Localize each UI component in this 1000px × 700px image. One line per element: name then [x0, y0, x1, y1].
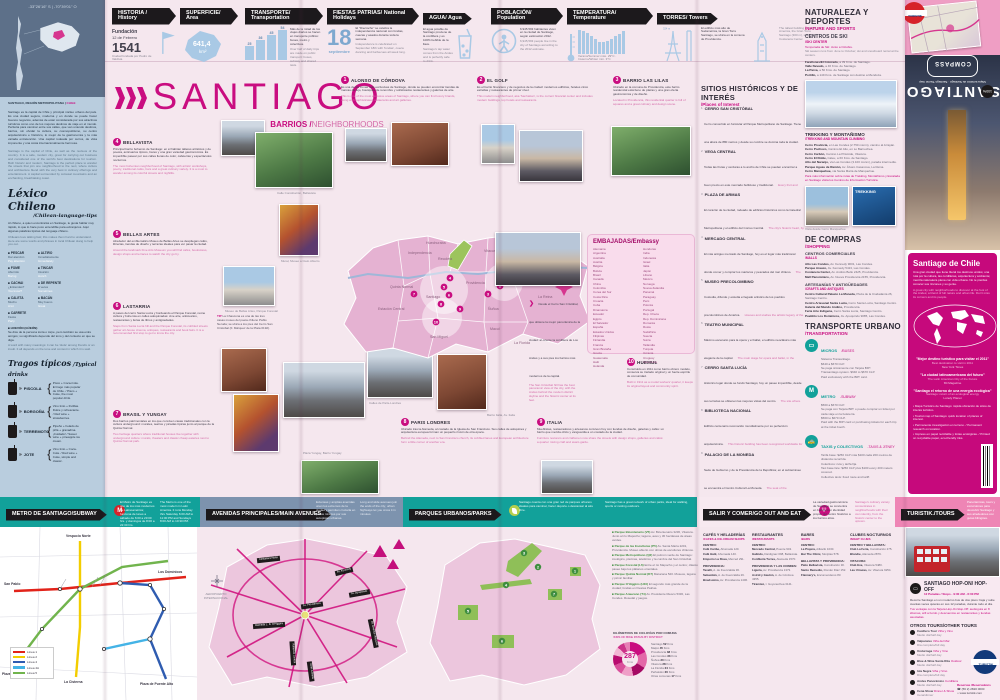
barrio-number: 3 — [613, 76, 621, 84]
avenidas-banner: AVENIDAS PRINCIPALES/MAIN AVENUES — [206, 509, 331, 521]
trail-item: Cerro Manquehue, vía Santa María de Manq… — [805, 169, 901, 173]
bares-column: BARES/BARS CENTRO: La Piojera, Aillavilú… — [801, 533, 847, 579]
chevron-icon — [126, 87, 136, 109]
transport-bar-chart: 25364554 — [245, 28, 287, 60]
ski-season-en: Ski season runs from June to October; sk… — [805, 50, 901, 58]
barrio-number: 9 — [537, 418, 545, 426]
venue: Confitería Torres, Alameda 1570. — [752, 558, 798, 562]
poblacion-note-es: 6.945.593 habitantes viven en la ciudad … — [520, 28, 558, 40]
svg-text:km²: km² — [199, 49, 207, 54]
venue: Astrid y Gastón, A. de Córdova 4355. — [752, 574, 798, 582]
cafes-column: CAFÉS Y HELADERÍAS/CAFES & ICE-CREAM SHO… — [703, 533, 749, 584]
hopon-highlight: Tus ventajas con la Tarjeta Hop-On/Hop-O… — [910, 608, 995, 620]
svg-text:Providencia: Providencia — [466, 281, 485, 285]
park-item: ■ Parque Metropolitano (Q2) El pulmón ve… — [612, 553, 698, 561]
ski-center: Portillo, a 149 Kms. de Santiago con des… — [805, 73, 901, 77]
photo-sanhattan — [519, 130, 583, 182]
barrio-entry-8: 8PARIS LONDRES Ubicado tras la Alameda, … — [401, 418, 529, 445]
band-turistik: TURISTIK./TOURS Panorámicas, tours y exc… — [895, 497, 1000, 527]
temperature-bar — [622, 31, 625, 53]
embassies-title: EMBAJADAS/Embassy — [593, 239, 689, 245]
drink-item: » TERREMOTO { Pipeño + helado de piña + … — [8, 425, 97, 444]
trekking-list: Cerro Provincia, en Las Condes (2.750 ms… — [805, 143, 901, 173]
transporte-banner: TRANSPORTE/ Transportation — [245, 8, 323, 25]
barrio-number: 4 — [113, 138, 121, 146]
world-map-graphic — [913, 304, 997, 348]
water-glass-icon — [456, 28, 474, 60]
photo-golf-towers — [481, 124, 515, 164]
svg-text:Plaza de Puente Alto: Plaza de Puente Alto — [140, 682, 173, 686]
towers-icon: 324 m — [657, 27, 697, 65]
lexico-word: ■ CALETA Mucho A lot — [8, 296, 38, 308]
transport-bar: 25 — [245, 42, 254, 60]
legend-row: Línea 4 — [13, 660, 51, 664]
eco-bullet: • Tourist map of Santiago: quick locatio… — [913, 415, 992, 423]
tour-icon — [910, 690, 915, 695]
temperatura-banner: TEMPERATURA/ Temperature — [567, 8, 653, 25]
temperature-bar — [602, 42, 605, 53]
intro-es: Santiago es la capital de Chile y princi… — [8, 111, 97, 146]
park-item: ■ Parque Quinta Normal (D7) Matucana 520… — [612, 572, 698, 580]
barrio-number: 1 — [341, 76, 349, 84]
photo-galeria-arte — [391, 122, 449, 166]
lexico-word: ■ DE REPENTE A veces Sometimes — [38, 281, 68, 293]
subtitle-barrios: BARRIOS / — [270, 120, 311, 129]
barrio-entry-6: 6LASTARRIA A pasos del cerro Santa Lucía… — [113, 302, 215, 336]
metro-band-es: El Metro de Santiago es uno de los más m… — [120, 501, 156, 528]
svg-text:Recoleta: Recoleta — [438, 257, 452, 261]
temperature-bar — [578, 30, 581, 53]
tours-title: OTROS TOURS/OTHER TOURS — [910, 623, 995, 628]
tour-item: Valparaíso Viña del MarDía completo/full… — [910, 640, 995, 648]
airport-label: AEROPUERTO INTERNACIONAL — [203, 593, 229, 601]
transport-bar: 54 — [278, 26, 287, 60]
legend-row: Línea 1 — [13, 650, 51, 654]
coordinates: -33°26'16" S | -70°39'01" O — [0, 4, 105, 9]
park-item: ■ Parque O'Higgins (H10) El segundo más … — [612, 582, 698, 590]
salir-y-comer-panel: CAFÉS Y HELADERÍAS/CAFES & ICE-CREAM SHO… — [700, 527, 895, 700]
ciclovias-title-en: /KMS OF BIKE PATHS BY DISTRICT — [613, 636, 699, 640]
temperature-bar — [582, 31, 585, 53]
photo-plaza-yungay — [301, 460, 379, 494]
drink-item: » BORGOÑA { Vino tinto + frutillas. Dulc… — [8, 405, 97, 421]
poblacion-banner: POBLACIÓN/ Population — [491, 8, 563, 25]
avenidas-band-es: Extensas y amplias avenidas unen los ext… — [316, 501, 356, 520]
fiestas-note-en: Independence is celebrated on September … — [355, 43, 407, 55]
barrio-entry-1: 1ALONSO DE CÓRDOVA Es una de las zonas m… — [341, 76, 463, 103]
drink-glass-icon — [8, 382, 17, 395]
photo-hiker — [805, 186, 849, 226]
photo-caption: Museo de Bellas Artes, Parque Forestal — [225, 309, 279, 313]
photo-alonso-cordova — [345, 128, 387, 162]
tour-icon — [910, 640, 915, 645]
brace-glyph: { — [47, 405, 51, 418]
huevon-note: ■ HUEVÓN (GÜEÓN) Se dice de la persona t… — [8, 327, 97, 351]
infographic-superficie: SUPERFICIE/ Area 641,4 km² — [180, 6, 238, 69]
venue: Tiramisú, I. Goyenechea 3141. — [752, 583, 798, 587]
lexico-word: ■ PESCAR Dar atención Pay attention — [8, 251, 38, 263]
region-line: SANTIAGO, REGIÓN METROPOLITANA | CHILE — [8, 102, 97, 106]
panorama-caption: ❯ Desde el Cerro San Cristóbal, que obti… — [529, 292, 581, 403]
back-intro-es: Una gran ciudad que tiene literal los de… — [913, 271, 992, 287]
avenidas-map-panel: AEROPUERTO INTERNACIONAL Costanera Norte… — [197, 527, 420, 700]
photo-lastarria — [221, 348, 267, 392]
salir-band-en: Santiago's culinary variety concentrates… — [855, 501, 893, 524]
photo-street-scene — [283, 362, 365, 418]
barrio-number: 7 — [113, 410, 121, 418]
park-item: ■ Parque Forestal (L6) Entre el río Mapo… — [612, 563, 698, 571]
photo-turistik-bus-street — [905, 527, 1000, 577]
chile-map-outline — [10, 14, 95, 94]
lexico-word: ■ ALTIRO Inmediatamente Immediately — [38, 251, 68, 263]
venue: Bravissimo, Av. Providencia 1406. — [703, 579, 749, 583]
mode-line: Paid with the BIP! card or purchasing ti… — [821, 420, 899, 429]
svg-text:641,4: 641,4 — [193, 41, 211, 48]
mode-line: Taxi base fare: $250 CLP plus $100 every… — [821, 466, 899, 475]
photo-caption: Calles de Paris-Londres — [369, 401, 429, 405]
lexico-intro-es: Al chileno, a quien encontrarás en Santi… — [8, 222, 97, 234]
svg-text:324 m: 324 m — [663, 27, 670, 31]
eco-bullet: • Mapa Turístico de Santiago: rápida ubi… — [913, 405, 992, 413]
lexico-word: ■ CARRETE Fiesta Party — [8, 311, 38, 323]
malls-list: Alto Las Condes, Av. Kennedy 9001, Las C… — [805, 262, 901, 279]
cover-front-panel: SANTIAGO Mapa turístico de Santiago · Sa… — [905, 55, 1000, 250]
malls-subtitle: /MALLS — [805, 256, 901, 260]
tour-icon — [910, 670, 915, 675]
park-item: ■ Parque Bicentenario (V5) Av. Bicentena… — [612, 530, 698, 542]
infographic-temperatura: TEMPERATURA/ Temperature Verano/Summer m… — [567, 6, 653, 62]
gran-torre-silhouette — [948, 110, 966, 220]
back-intro-en: A great city with neighborhoods to disco… — [913, 289, 992, 301]
parques-list: ■ Parque Bicentenario (V5) Av. Bicentena… — [612, 530, 698, 630]
temperature-bar — [594, 39, 597, 53]
brace-glyph: { — [47, 448, 51, 461]
compass-logo: COMPASS — [927, 55, 978, 77]
back-title: Santiago de Chile — [913, 259, 992, 268]
turistik-banner: TURISTIK./TOURS — [901, 509, 965, 521]
mode-line: Se paga con Tarjeta BIP! o puede comprar… — [821, 407, 899, 416]
svg-text:San Pablo: San Pablo — [4, 582, 20, 586]
chevron-icon — [115, 87, 125, 109]
lexico-word: ■ BACÁN Muy bueno Great — [38, 296, 68, 308]
mall-item: Mall Panorámico, Av. Nueva Providencia 2… — [805, 275, 901, 279]
lexico-intro-en: Chileans love talking fast; this makes t… — [8, 236, 97, 248]
chevron-icon — [137, 87, 147, 109]
naturaleza-subtitle: /NATURE AND SPORTS — [805, 26, 901, 31]
eco-bullet: • Permanente investigación en terreno. /… — [913, 424, 992, 432]
crafts-list: Centro Cultural Palacio La Moneda, Plaza… — [805, 292, 901, 318]
band-parques: PARQUES URBANOS/PARKS Santiago cuenta co… — [403, 497, 697, 527]
lexico-word: ■ CACHAI ¿Entiendes? You know? — [8, 281, 38, 293]
temperature-bar — [590, 36, 593, 54]
band-metro: METRO DE SANTIAGO/SUBWAY M El Metro de S… — [0, 497, 200, 527]
drinks-title: Tragos típicos /Typical drinks — [8, 358, 97, 378]
mode-metro: M METRO -SUBWAY $560 a $670 CLP.Se paga … — [805, 385, 901, 429]
metro-banner: METRO DE SANTIAGO/SUBWAY — [6, 509, 107, 521]
svg-text:Estación Central: Estación Central — [378, 307, 405, 311]
drinks-list: » PISCOLA { Pisco + Coca-Cola. El trago … — [8, 382, 97, 464]
temperature-bar — [598, 42, 601, 54]
barrio-entry-4: 4BELLAVISTA Principal barrio bohemio de … — [113, 138, 215, 176]
agua-banner: AGUA/ Agua — [423, 13, 472, 25]
park-item: ■ Parque de las Esculturas (P5) Av. Sant… — [612, 544, 698, 552]
photo-caption: Plaza Yungay, Barrio Yungay — [303, 451, 379, 455]
quote: "La ciudad latinoamericana del futuro" T… — [913, 373, 992, 385]
drink-item: » JOTE { Vino tinto + Coca-Cola. / Red w… — [8, 448, 97, 464]
drink-glass-icon — [8, 425, 17, 438]
quotes-list: "Mejor destino turístico para visitar el… — [913, 357, 992, 401]
clubes-column: CLUBES NOCTURNOS/NIGHT CLUBS CENTRO Y BE… — [850, 533, 896, 574]
brace-glyph: { — [47, 425, 51, 438]
svg-text:Macul: Macul — [490, 327, 500, 331]
salir-band-es: La variedad gastronómica de Santiago se … — [813, 501, 851, 520]
fiestas-note-es: El "Dieciocho" se celebra la independenc… — [355, 27, 407, 43]
map-sheet: -33°26'16" S | -70°39'01" O HISTORIA / H… — [0, 0, 1000, 700]
embassy-line: Venezuela — [643, 360, 689, 364]
population-icon — [491, 28, 517, 54]
barrio-number: 5 — [113, 230, 121, 238]
tour-item: Casillero Tour Viña y VinoMedio día/half… — [910, 630, 995, 638]
chile-locator-panel: -33°26'16" S | -70°39'01" O — [0, 0, 105, 97]
legend-row: Línea 2 — [13, 655, 51, 659]
brace-glyph: { — [47, 382, 51, 395]
legend-row: Línea 4A — [13, 666, 51, 670]
metro-band-en: The Metro is one of the most modern in L… — [160, 501, 196, 524]
crafts-subtitle: /CRAFTS AND ANTIQUES — [805, 287, 901, 291]
ciclovias-legend-row: Otras comunas 17 Kms — [651, 674, 681, 678]
photo-caption: Mural, Museo a Cielo Abierto — [281, 259, 325, 263]
svg-text:Vespucio Norte: Vespucio Norte — [66, 534, 91, 538]
ciclovias-chart: KILÓMETROS DE CICLOVÍAS POR COMUNA /KMS … — [613, 632, 699, 698]
mode-taxis: 🚕 TAXIS y COLECTIVOS -TAXIS & JITNEY Tar… — [805, 435, 901, 479]
embassy-line: Holanda — [593, 364, 639, 368]
turistik-hopon-panel: ▭ SANTIAGO HOP-ON/ HOP-OFF 12 Paradas / … — [905, 577, 1000, 700]
photo-bellas-artes — [223, 266, 275, 306]
parques-banner: PARQUES URBANOS/PARKS — [409, 509, 502, 521]
infographic-agua: AGUA/ Agua El agua potable de Santiago p… — [423, 6, 485, 64]
barrio-entry-3: 3BARRIO LAS LILAS Ubicado en la comuna d… — [613, 76, 693, 106]
tour-icon — [910, 660, 915, 665]
transport-bar: 36 — [256, 36, 265, 60]
photo-calle-constitucion — [255, 132, 333, 188]
lexico-word: ■ FOME Aburrido Boring — [8, 266, 38, 278]
svg-text:San Miguel: San Miguel — [430, 335, 448, 339]
barrio-number: 2 — [477, 76, 485, 84]
barrio-entry-5: 5BELLAS ARTES Alrededor del emblemático … — [113, 230, 215, 257]
photo-trekking-guide: TREKKING — [852, 186, 896, 226]
metro-legend: Línea 1 Línea 2 Línea 4 Línea 4A — [10, 647, 54, 679]
lexico-subtitle: /Chilean-language-tips — [8, 213, 97, 219]
fundacion-year: 1541 — [112, 40, 158, 55]
parques-map-panel: 1 2 3 4 5 6 7 — [420, 527, 612, 700]
barrios-panel: SANTIAGO BARRIOS /NEIGHBORHOODS 1ALONSO … — [105, 62, 697, 497]
eco-bullets: • Mapa Turístico de Santiago: rápida ubi… — [913, 405, 992, 441]
craft-item: Pueblito Los Domínicos, Av. Apoquindo 90… — [805, 314, 901, 318]
transporte-urbano-title: TRANSPORTE URBANO — [805, 322, 901, 331]
fiestas-month: septiembre — [327, 49, 351, 54]
cover-top-panel: TURISTIK — [905, 0, 1000, 55]
svg-text:10: 10 — [434, 320, 439, 325]
transport-bar: 45 — [267, 31, 276, 60]
transporte-urbano-subtitle: /TRANSPORTATION — [805, 331, 901, 336]
infographic-poblacion: POBLACIÓN/ Population 6.945.593 habitant… — [491, 6, 563, 54]
venue: Flannery's, Encomenderos 83. — [801, 574, 847, 578]
flag-icon — [161, 29, 176, 55]
venue: Las Urracas, Av. Vitacura 9254. — [850, 569, 896, 573]
poblacion-note-en: 6,945,593 people live in the city of San… — [520, 40, 558, 52]
metro-icon: M — [805, 385, 818, 398]
ski-centers-list: Farellones/El Colorado, a 39 Kms. de San… — [805, 60, 901, 77]
band-avenidas: AVENIDAS PRINCIPALES/MAIN AVENUES Extens… — [200, 497, 403, 527]
compras-subtitle: /SHOPPING — [805, 244, 901, 249]
photo-ski-valley — [805, 80, 897, 128]
restaurantes-column: RESTAURANTES/RESTAURANTS CENTRO: Mercado… — [752, 533, 798, 587]
transporte-note-es: Más de la mitad de los viajes diarios se… — [290, 28, 323, 47]
tour-icon — [910, 630, 915, 635]
temperature-bar — [586, 33, 589, 54]
naturaleza-title: NATURALEZA Y DEPORTES — [805, 8, 901, 26]
mode-line: Tarifa base: $250 CLP más $100 cada 200 … — [821, 453, 899, 462]
bus-icon: ▭ — [805, 339, 818, 352]
turistik-logo: TURISTIK — [973, 650, 997, 674]
hopon-es: Recorre Santiago en un moderno bus de do… — [910, 599, 995, 607]
eco-bullet: • Impreso en papel reciclable y tintas e… — [913, 433, 992, 441]
infographic-fiestas: FIESTAS PATRIAS/ National Holidays 18 se… — [327, 6, 419, 55]
svg-text:La Florida: La Florida — [514, 341, 530, 345]
photo-las-lilas — [611, 126, 691, 176]
barrio-entry-9: 9ITALIA Mueblistas, restauradores y arte… — [537, 418, 665, 445]
temperature-bar-chart — [578, 28, 634, 54]
svg-text:Santiago: Santiago — [426, 295, 440, 299]
lexico-word: ■ TINCAR Intuición Hunch — [38, 266, 68, 278]
right-column: SITIOS HISTÓRICOS Y DE INTERÉS /Places o… — [697, 0, 905, 497]
area-blob-icon: 641,4 km² — [180, 28, 224, 64]
temperature-bar — [618, 34, 621, 54]
trek-photo-caption: Vista desde Cerro Manquehue — [805, 227, 901, 231]
thermometer-icon — [567, 32, 575, 62]
legend-row: Línea 5 — [13, 671, 51, 675]
parques-band-es: Santiago cuenta con una gran red de parq… — [519, 501, 599, 513]
historia-banner: HISTORIA / History — [112, 8, 176, 25]
ciclovias-legend: Santiago 52 KmsMaipú 45 KmsProvidencia 3… — [651, 642, 681, 679]
barcode — [981, 444, 993, 488]
intro-en: Santiago is the capital of Chile, as wel… — [8, 150, 97, 181]
ciclovias-unit: Kms — [627, 660, 633, 664]
svg-text:Quinta Normal: Quinta Normal — [390, 285, 413, 289]
tour-icon — [910, 680, 915, 685]
superficie-banner: SUPERFICIE/ Area — [180, 8, 238, 25]
fiestas-banner: FIESTAS PATRIAS/ National Holidays — [327, 8, 419, 25]
tour-icon — [910, 650, 915, 655]
salir-banner: SALIR Y COMER/GO OUT AND EAT — [703, 509, 811, 521]
band-salir: SALIR Y COMER/GO OUT AND EAT Ψ La varied… — [697, 497, 895, 527]
lexico-word-grid: ■ PESCAR Dar atención Pay attention ■ AL… — [8, 251, 97, 323]
svg-text:La Cisterna: La Cisterna — [64, 680, 83, 684]
venue: Blondie, Alameda 2879. — [850, 553, 896, 557]
quote: "Mejor destino turístico para visitar el… — [913, 357, 992, 369]
photo-caption: Calle Constitución, Bellavista — [277, 191, 337, 195]
temperature-bar — [606, 41, 609, 54]
craft-item: Centro Cultural Palacio La Moneda, Plaza… — [805, 292, 901, 301]
embassies-list: AlemaniaArgentinaAustraliaAustriaBélgica… — [593, 247, 689, 369]
park-item: ■ Parque Araucano (T4) Av. Presidente Ri… — [612, 592, 698, 600]
trekking-note: Para más información sobre rutas de Trek… — [805, 175, 901, 183]
cover-back-panel: Santiago de Chile Una gran ciudad que ti… — [905, 250, 1000, 497]
venue: Bar The Clinic, Monjitas 578. — [801, 553, 847, 557]
parques-band-en: Santiago has a great network of urban pa… — [605, 501, 691, 509]
quote: "Santiago el retorno de una energía ecol… — [913, 389, 992, 401]
barrio-entry-7: 7BRASIL Y YUNGAY Dos barrios patrimonial… — [113, 410, 215, 444]
drink-glass-icon — [8, 448, 17, 461]
photo-mural — [279, 204, 319, 256]
reservations-block: Reservas /Reservations ☎ (56 2) 2820 000… — [957, 684, 997, 696]
mode-line: Paid exclusively with the BIP! card. — [821, 375, 899, 379]
compras-title: DE COMPRAS — [805, 235, 901, 244]
temperature-bar — [610, 39, 613, 53]
naturaleza-section: NATURALEZA Y DEPORTES /NATURE AND SPORTS… — [805, 8, 901, 485]
svg-text:Huechuraba: Huechuraba — [426, 241, 446, 245]
hopon-bus-icon: ▭ — [910, 583, 921, 594]
ski-subtitle: /SKI CENTER — [805, 40, 901, 44]
infographic-historia: HISTORIA / History Fundación 12 de Febre… — [112, 6, 176, 62]
fiestas-day: 18 — [327, 27, 351, 49]
recycled-badge: 100% — [981, 85, 994, 98]
photo-caption: Barrio Italia, Av. Italia — [487, 413, 543, 417]
photo-italia — [541, 460, 593, 494]
drink-item: » PISCOLA { Pisco + Coca-Cola. El trago … — [8, 382, 97, 401]
taxi-icon: 🚕 — [805, 435, 818, 448]
trekking-subtitle: /TREKKING AND MOUNTAIN CLIMBING — [805, 137, 901, 141]
mode-buses: ▭ MICROS /BUSES Sistema Transantiago.$64… — [805, 339, 901, 379]
svg-text:Los Domínicos: Los Domínicos — [158, 570, 182, 574]
photo-panorama-san-cristobal — [495, 232, 581, 286]
hopon-sub: 12 Paradas / Stops · 9:30 AM - 6:00 PM — [924, 593, 995, 597]
metro-map-panel: San Pablo Los Domínicos Vespucio Norte L… — [0, 527, 197, 700]
barrio-number: 6 — [113, 302, 121, 310]
double-decker-bus — [914, 546, 950, 572]
svg-text:Ñuñoa: Ñuñoa — [488, 306, 499, 311]
left-intro-column: SANTIAGO, REGIÓN METROPOLITANA | CHILE S… — [0, 97, 105, 497]
ciclovias-total: 287 — [624, 653, 636, 660]
photo-yungay-mural — [233, 394, 279, 452]
barrio-number: 8 — [401, 418, 409, 426]
drink-glass-icon — [8, 405, 17, 418]
lexico-title: Léxico Chileno — [8, 187, 97, 213]
mode-line: Collective taxis: fixed route and tariff… — [821, 475, 899, 479]
temperature-bar — [614, 36, 617, 54]
venue: Emporio La Rosa, Merced 291. — [703, 558, 749, 562]
turistik-band-note: Panorámicas, tours y excursiones para de… — [967, 501, 997, 520]
svg-text:Independencia: Independencia — [408, 251, 432, 255]
agua-note-es: El agua potable de Santiago proviene de … — [423, 28, 453, 47]
tip-block-1: TIP La Chascona es una de las tres casas… — [217, 314, 273, 330]
barrio-entry-2: 2EL GOLF Es el barrio financiero y de ne… — [477, 76, 599, 103]
embassies-box: EMBAJADAS/Embassy AlemaniaArgentinaAustr… — [587, 234, 695, 354]
avenidas-band-en: Long and wide avenues join the ends of t… — [360, 501, 400, 517]
infographic-transporte: TRANSPORTE/ Transportation 25364554 Más … — [245, 6, 323, 67]
